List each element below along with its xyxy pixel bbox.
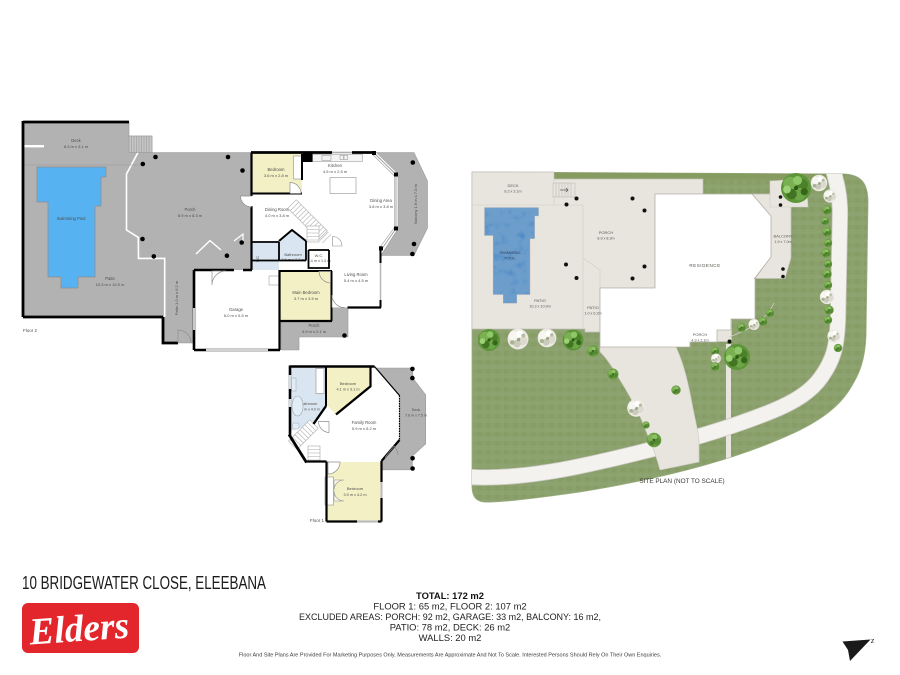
svg-text:4.1 m x 3.1 m: 4.1 m x 3.1 m [336, 388, 359, 392]
svg-text:Living Room: Living Room [344, 272, 368, 277]
svg-text:Main Bedroom: Main Bedroom [292, 290, 320, 295]
svg-text:3.9 m x 4.2 m: 3.9 m x 4.2 m [343, 493, 366, 497]
svg-text:Patio 1.0 m x 6.2 m: Patio 1.0 m x 6.2 m [174, 280, 179, 315]
svg-text:Dining Area: Dining Area [370, 198, 392, 203]
svg-text:Kitchen: Kitchen [328, 163, 343, 168]
svg-text:8.9 m x 8.3 m: 8.9 m x 8.3 m [178, 213, 203, 218]
svg-text:4.9 m x 2.1 m: 4.9 m x 2.1 m [302, 329, 327, 334]
svg-text:8.3 x 3.1m: 8.3 x 3.1m [504, 190, 521, 194]
svg-text:EXCLUDED AREAS: PORCH: 92 m2,: EXCLUDED AREAS: PORCH: 92 m2, GARAGE: 33… [299, 611, 601, 622]
svg-text:3.7 m x 3.5 m: 3.7 m x 3.5 m [294, 296, 319, 301]
svg-text:PATIO: 78 m2, DECK: 26 m2: PATIO: 78 m2, DECK: 26 m2 [390, 622, 511, 633]
svg-text:RESIDENCE: RESIDENCE [689, 263, 720, 268]
svg-text:Porch: Porch [309, 323, 321, 328]
svg-text:8.3 m x 3.1 m: 8.3 m x 3.1 m [64, 144, 89, 149]
svg-text:Deck: Deck [412, 408, 421, 412]
svg-text:Family Room: Family Room [352, 420, 377, 425]
svg-text:SITE PLAN (NOT TO SCALE): SITE PLAN (NOT TO SCALE) [639, 478, 724, 485]
svg-text:1.9 x 7.0m: 1.9 x 7.0m [774, 240, 791, 244]
svg-text:Bathroom: Bathroom [284, 252, 302, 257]
svg-text:Floor And Site Plans Are Provi: Floor And Site Plans Are Provided For Ma… [239, 653, 662, 659]
svg-text:Porch: Porch [185, 207, 197, 212]
svg-text:Floor 2: Floor 2 [23, 328, 38, 333]
svg-text:3.6 m x 2.8 m: 3.6 m x 2.8 m [264, 173, 289, 178]
svg-text:PATIO: PATIO [587, 305, 598, 310]
svg-text:4.5 m x 2.5 m: 4.5 m x 2.5 m [323, 169, 348, 174]
svg-text:PATIO: PATIO [534, 298, 545, 303]
svg-text:1.4 m x 1.0 m: 1.4 m x 1.0 m [307, 259, 330, 263]
svg-text:10.3 m x 10.9 m: 10.3 m x 10.9 m [96, 282, 125, 287]
svg-text:FLOOR 1: 65 m2, FLOOR 2: 107 m: FLOOR 1: 65 m2, FLOOR 2: 107 m2 [373, 601, 526, 612]
svg-text:4.0 m x 3.8 m: 4.0 m x 3.8 m [265, 213, 290, 218]
svg-text:3.8 m x 3.8 m: 3.8 m x 3.8 m [369, 204, 394, 209]
svg-text:7.8 m x 7.5 m: 7.8 m x 7.5 m [405, 414, 427, 418]
svg-text:W.C.: W.C. [315, 253, 324, 258]
svg-text:Elders: Elders [27, 605, 131, 654]
svg-text:8.9 x 8.3m: 8.9 x 8.3m [597, 237, 614, 241]
svg-text:PORCH: PORCH [693, 332, 708, 337]
svg-text:PORCH: PORCH [599, 230, 614, 235]
svg-text:Balcony 1.9 m x 7.0 m: Balcony 1.9 m x 7.0 m [413, 184, 418, 224]
svg-text:POOL: POOL [504, 256, 516, 261]
svg-text:Bedroom: Bedroom [340, 381, 357, 386]
svg-text:TOTAL: 172 m2: TOTAL: 172 m2 [416, 590, 484, 601]
svg-text:WALLS: 20 m2: WALLS: 20 m2 [419, 632, 482, 643]
svg-text:10.3 x 10.9m: 10.3 x 10.9m [529, 305, 550, 309]
svg-text:10 BRIDGEWATER CLOSE, ELEEBANA: 10 BRIDGEWATER CLOSE, ELEEBANA [22, 573, 266, 593]
svg-text:5.4 m x 4.5 m: 5.4 m x 4.5 m [344, 278, 369, 283]
svg-text:4.9 x 2.1m: 4.9 x 2.1m [691, 339, 708, 343]
svg-text:Swimming Pool: Swimming Pool [57, 216, 86, 221]
svg-text:Bedroom: Bedroom [268, 167, 286, 172]
svg-text:5.9 m x 5.2 m: 5.9 m x 5.2 m [352, 426, 377, 431]
svg-text:Dining Room: Dining Room [265, 207, 290, 212]
svg-text:Bedroom: Bedroom [347, 486, 364, 491]
svg-text:6.0 m x 5.5 m: 6.0 m x 5.5 m [224, 313, 249, 318]
svg-text:1.0 x 6.2m: 1.0 x 6.2m [584, 312, 601, 316]
svg-text:Deck: Deck [71, 138, 81, 143]
svg-text:BALCONY: BALCONY [773, 234, 792, 239]
svg-text:Garage: Garage [229, 307, 244, 312]
svg-text:Patio: Patio [105, 276, 115, 281]
svg-text:Floor 1: Floor 1 [310, 518, 325, 523]
svg-text:DECK: DECK [507, 183, 518, 188]
svg-text:SWIMMING: SWIMMING [499, 250, 520, 255]
